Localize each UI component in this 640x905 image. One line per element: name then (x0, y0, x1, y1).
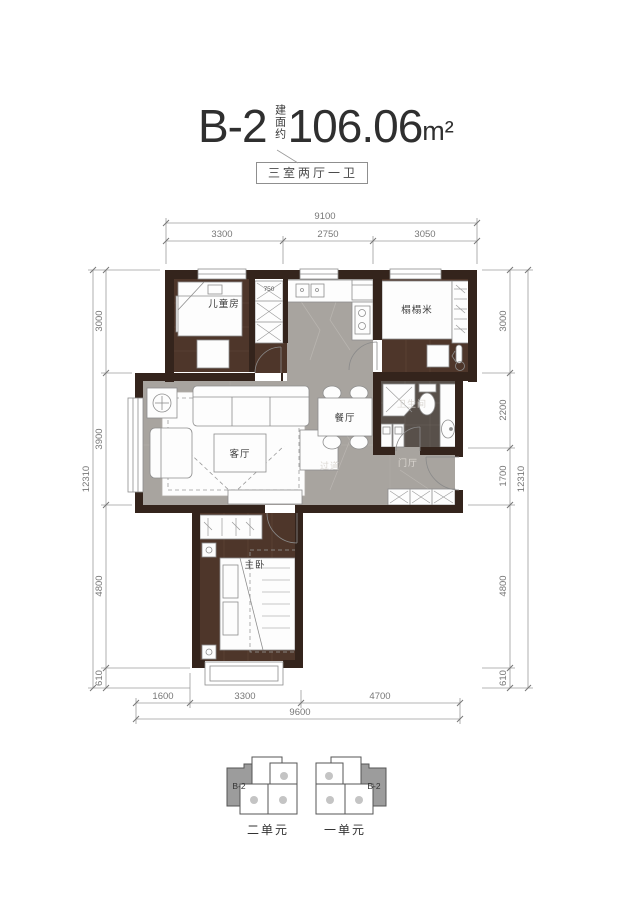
dim-top-total: 9100 (314, 211, 335, 222)
dim-right-seg-3: 4800 (498, 575, 509, 596)
dim-left-seg-0: 3000 (94, 310, 105, 331)
dim-right-seg-2: 1700 (498, 465, 509, 486)
key-plan-right-building: B-2 (316, 757, 386, 814)
dim-left-seg-2: 4800 (94, 575, 105, 596)
room-label-corridor: 过道 (320, 460, 340, 471)
room-label-children: 儿童房 (208, 298, 240, 310)
floorplan-drawing: 儿童房 榻榻米 客厅 餐厅 卫生间 过道 门厅 主卧 750 91 (0, 0, 640, 905)
closet-width-label: 750 (264, 286, 275, 293)
room-label-foyer: 门厅 (398, 457, 418, 468)
key-plan: B-2 B-2 二单元 一单元 (227, 757, 386, 837)
dim-bottom: 1600 3300 4700 9600 (133, 673, 463, 724)
dim-right-total: 12310 (516, 466, 527, 492)
room-label-living: 客厅 (229, 448, 250, 460)
floorplan-page: B-2 建面约 106.06 m² 三室两厅一卫 (0, 0, 640, 905)
dim-left-seg-3: 610 (94, 670, 105, 686)
key-plan-left-tag: B-2 (232, 781, 246, 791)
key-plan-left-building: B-2 (227, 757, 297, 814)
room-label-dining: 餐厅 (334, 412, 355, 424)
dim-right-seg-4: 610 (498, 670, 509, 686)
dim-left-total: 12310 (81, 466, 92, 492)
room-label-master: 主卧 (244, 559, 265, 571)
dim-top: 9100 3300 2750 3050 (163, 211, 480, 264)
dim-top-seg-1: 2750 (317, 229, 338, 240)
shoe-cabinet (388, 489, 455, 505)
dim-bottom-seg-1: 3300 (234, 691, 255, 702)
dim-bottom-total: 9600 (289, 707, 310, 718)
dim-bottom-seg-2: 4700 (369, 691, 390, 702)
key-plan-right-tag: B-2 (367, 781, 381, 791)
dim-left-seg-1: 3900 (94, 428, 105, 449)
room-label-tatami: 榻榻米 (401, 304, 433, 316)
dim-top-seg-2: 3050 (414, 229, 435, 240)
dim-right: 3000 2200 1700 4800 610 12310 (468, 267, 533, 691)
dim-right-seg-1: 2200 (498, 399, 509, 420)
dim-bottom-seg-0: 1600 (152, 691, 173, 702)
dim-right-seg-0: 3000 (498, 310, 509, 331)
room-label-bathroom: 卫生间 (397, 398, 427, 409)
dim-top-seg-0: 3300 (211, 229, 232, 240)
badge-leader-line (277, 150, 298, 163)
key-plan-left-name: 二单元 (247, 823, 289, 837)
key-plan-right-name: 一单元 (324, 823, 366, 837)
